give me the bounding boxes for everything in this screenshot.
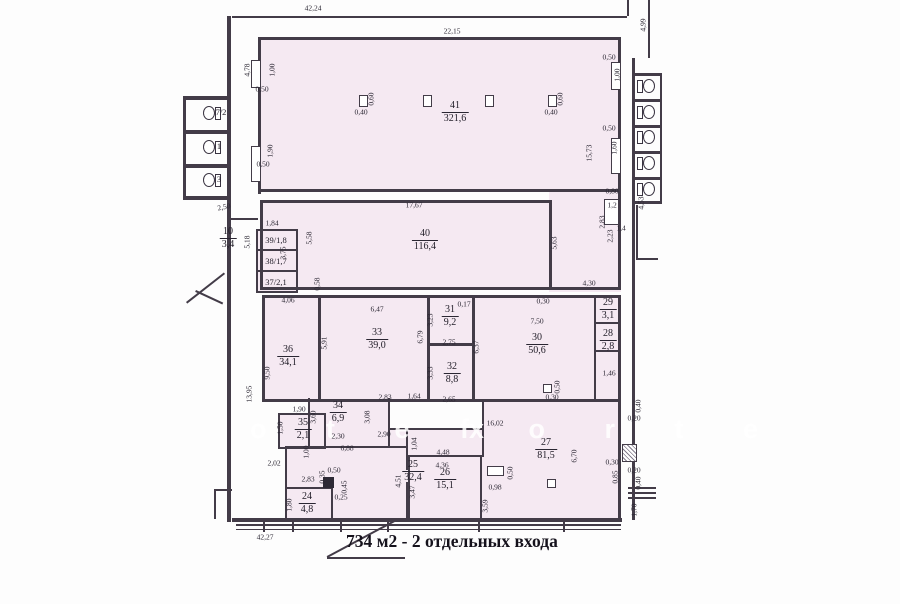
dim-label: 1,90 <box>266 144 274 157</box>
dim-label: 2,83 <box>301 475 314 483</box>
wall <box>258 37 621 40</box>
dim-label: 4,78 <box>243 63 251 76</box>
toilet-bowl <box>643 79 655 93</box>
room-number: 28 <box>600 328 617 341</box>
wall <box>634 177 662 180</box>
wall <box>183 130 230 134</box>
dim-label: 1,4 <box>616 224 625 232</box>
toilet-bowl <box>643 156 655 170</box>
dim-label: 42,24 <box>305 4 322 12</box>
toilet-icon <box>637 104 657 120</box>
room-area: 81,5 <box>535 450 557 462</box>
wall <box>262 295 621 298</box>
toilet-bowl <box>203 173 215 187</box>
dim-label: 5,63 <box>550 236 558 249</box>
toilet-icon <box>637 129 657 145</box>
dim-label: 15,73 <box>585 145 593 162</box>
room-area: 321,6 <box>442 113 469 125</box>
dim-label: 2,65 <box>442 395 455 403</box>
wall <box>660 73 662 204</box>
dim-label: 0,50 <box>602 53 615 61</box>
dim-label: 4,51 <box>394 474 402 487</box>
room-area: 3,1 <box>600 310 617 322</box>
room-number: 41 <box>442 100 469 113</box>
dim-label: 6,88 <box>340 444 353 452</box>
dim-label: 0,30 <box>536 297 549 305</box>
room-label-40: 40116,4 <box>412 228 438 252</box>
room-label-29: 293,1 <box>600 297 617 321</box>
room-area: 2,8 <box>600 341 617 353</box>
dim-label: 0,30 <box>605 458 618 466</box>
wall <box>256 291 298 293</box>
dim-label: 1,04 <box>410 437 418 450</box>
dim-label: 1,00 <box>268 63 276 76</box>
dim-label: 0,40 <box>634 399 642 412</box>
room-label-36: 3634,1 <box>277 344 299 368</box>
room-number: 36 <box>277 344 299 357</box>
room-inline-label: 37/2,1 <box>265 277 287 287</box>
dim-label: 0,40 <box>634 476 642 489</box>
room-area: 2,1 <box>295 430 312 442</box>
wall <box>648 0 650 58</box>
wall <box>340 521 342 532</box>
dim-label: 2,83 <box>378 393 391 401</box>
dim-label: 4,30 <box>582 279 595 287</box>
dim-label: 13,95 <box>245 386 253 403</box>
dim-label: 5,58 <box>305 231 313 244</box>
toilet-bowl <box>203 140 215 154</box>
dim-label: 2,75 <box>442 338 455 346</box>
watermark-text: f o r t e <box>460 414 784 445</box>
room-label-25: 2532,4 <box>402 459 424 483</box>
room-label-30: 3050,6 <box>526 332 548 356</box>
wall <box>634 99 662 102</box>
toilet-bowl <box>643 130 655 144</box>
wall <box>230 218 258 220</box>
room-area: 34,1 <box>277 357 299 369</box>
room-number: 32 <box>444 361 461 374</box>
wall <box>262 295 265 402</box>
dim-label: 4,06 <box>281 296 294 304</box>
dim-label: 2,02 <box>267 459 280 467</box>
wall <box>256 229 298 231</box>
room-fill <box>260 200 552 290</box>
room-label-33: 3339,0 <box>366 327 388 351</box>
dim-label: 1,84 <box>265 219 278 227</box>
dim-label: 0,58 <box>313 277 321 290</box>
dim-label: 1,64 <box>407 392 420 400</box>
wall <box>214 489 232 491</box>
room-fill <box>258 37 621 192</box>
room-number: 31 <box>442 304 459 317</box>
niche-or-column-icon <box>547 479 556 488</box>
room-inline-label: 3 <box>217 174 221 184</box>
note-underline <box>327 557 405 559</box>
wall <box>183 96 230 100</box>
room-number: 27 <box>535 437 557 450</box>
room-label-10: 103,4 <box>220 226 237 250</box>
dim-label: 0,17 <box>457 300 470 308</box>
dim-label: 0,80 <box>605 187 618 195</box>
dim-label: 4,48 <box>436 448 449 456</box>
room-number: 24 <box>299 491 316 504</box>
dim-label: 0,20 <box>627 414 640 422</box>
wall <box>594 322 620 324</box>
wall <box>628 497 656 499</box>
dim-label: 42,27 <box>257 533 274 541</box>
room-area: 8,8 <box>444 374 461 386</box>
dim-label: 6,70 <box>570 449 578 462</box>
room-area: 15,1 <box>434 480 456 492</box>
niche-or-column-icon <box>487 466 504 476</box>
room-area: 9,2 <box>442 317 459 329</box>
wall <box>331 487 333 518</box>
toilet-icon <box>637 155 657 171</box>
wall <box>258 189 621 192</box>
wall <box>227 16 231 522</box>
room-number: 29 <box>600 297 617 310</box>
room-area: 3,4 <box>220 239 237 251</box>
room-label-32: 328,8 <box>444 361 461 385</box>
dim-label: 4,53 <box>637 196 645 209</box>
wall <box>183 196 230 200</box>
toilet-bowl <box>643 105 655 119</box>
dim-label: 0,20 <box>627 466 640 474</box>
dim-label: 1,00 <box>302 445 310 458</box>
dim-label: 0,25 <box>334 493 347 501</box>
dim-label: 1,70 <box>630 503 638 516</box>
wall <box>195 290 223 304</box>
dim-label: 3,23 <box>426 313 434 326</box>
dim-label: 1,00 <box>613 68 621 81</box>
shaft-icon <box>622 444 637 462</box>
wall <box>636 258 658 260</box>
dim-label: 0,85 <box>611 470 619 483</box>
dim-label: 2,23 <box>606 229 614 242</box>
dim-label: 0,50 <box>553 380 561 393</box>
dim-label: 0,50 <box>506 466 514 479</box>
wall <box>627 0 629 16</box>
wall <box>232 16 627 18</box>
dim-label: 0,40 <box>544 108 557 116</box>
room-number: 35 <box>295 417 312 430</box>
dim-label: 0,50 <box>256 160 269 168</box>
dim-label: 0,50 <box>327 466 340 474</box>
room-inline-label: 38/1,7 <box>265 256 287 266</box>
wall <box>636 205 638 260</box>
wall <box>183 164 230 168</box>
dim-label: 6,37 <box>472 340 480 353</box>
wall <box>628 492 656 494</box>
floor-plan: o t e xf o r t e42,2422,154,994,781,000,… <box>0 0 900 604</box>
room-number: 26 <box>434 467 456 480</box>
room-label-27: 2781,5 <box>535 437 557 461</box>
dim-label: 3,59 <box>481 499 489 512</box>
wall <box>263 521 265 532</box>
room-label-34: 346,9 <box>330 400 347 424</box>
dim-label: 3,08 <box>363 410 371 423</box>
wall <box>256 249 298 251</box>
dim-label: 6,79 <box>416 330 424 343</box>
room-label-41: 41321,6 <box>442 100 469 124</box>
wall <box>618 295 621 402</box>
area-note: 734 м2 - 2 отдельных входа <box>346 531 558 552</box>
dim-label: 0,50 <box>602 124 615 132</box>
room-number: 30 <box>526 332 548 345</box>
wall <box>563 521 565 532</box>
dim-label: 0,98 <box>488 483 501 491</box>
dim-label: 9,50 <box>263 366 271 379</box>
toilet-icon <box>637 78 657 94</box>
room-number: 40 <box>412 228 438 241</box>
dim-label: 1,46 <box>602 369 615 377</box>
niche-or-column-icon <box>485 95 494 107</box>
dim-label: 1,90 <box>292 405 305 413</box>
dim-label: 1,50 <box>276 421 284 434</box>
wall <box>260 200 263 290</box>
dim-label: 0,35 <box>318 470 326 483</box>
room-label-28: 282,8 <box>600 328 617 352</box>
wall <box>594 295 596 399</box>
wall <box>296 229 298 293</box>
dim-label: 0,30 <box>545 393 558 401</box>
room-area: 116,4 <box>412 241 438 253</box>
wall <box>256 229 258 293</box>
wall <box>634 125 662 128</box>
room-label-35: 352,1 <box>295 417 312 441</box>
room-number: 34 <box>330 400 347 413</box>
wall <box>183 96 186 200</box>
room-label-31: 319,2 <box>442 304 459 328</box>
toilet-bowl <box>643 182 655 196</box>
wall <box>186 272 225 303</box>
dim-label: 1,60 <box>610 141 618 154</box>
room-area: 6,9 <box>330 413 347 425</box>
room-label-26: 2615,1 <box>434 467 456 491</box>
niche-or-column-icon <box>423 95 432 107</box>
dim-label: 0,40 <box>354 108 367 116</box>
wall <box>427 295 430 399</box>
room-number: 25 <box>402 459 424 472</box>
wall <box>634 151 662 154</box>
dim-label: 1,2 <box>607 201 616 209</box>
dim-label: 22,15 <box>444 27 461 35</box>
dim-label: 0,60 <box>556 92 564 105</box>
dim-label: 3,33 <box>426 366 434 379</box>
room-label-24: 244,8 <box>299 491 316 515</box>
wall <box>214 489 216 519</box>
wall <box>292 521 294 532</box>
wall <box>390 446 408 448</box>
room-number: 33 <box>366 327 388 340</box>
toilet-bowl <box>203 106 215 120</box>
dim-label: 0,50 <box>255 85 268 93</box>
dim-label: 17,67 <box>406 201 423 209</box>
dim-label: 5,91 <box>320 336 328 349</box>
room-area: 39,0 <box>366 340 388 352</box>
dim-label: 2,90 <box>377 430 390 438</box>
dim-label: 4,99 <box>639 18 647 31</box>
room-inline-label: 39/1,8 <box>265 235 287 245</box>
dim-label: 7,50 <box>530 317 543 325</box>
toilet-icon <box>637 181 657 197</box>
room-area: 4,8 <box>299 504 316 516</box>
dim-label: 1,80 <box>285 498 293 511</box>
dim-label: 2,30 <box>331 432 344 440</box>
dim-label: 3,47 <box>408 485 416 498</box>
wall <box>634 73 662 76</box>
dim-label: 5,18 <box>243 235 251 248</box>
room-inline-label: 7/2 <box>216 107 227 117</box>
dim-label: 2,83 <box>598 215 606 228</box>
dim-label: 16,02 <box>487 419 504 427</box>
dim-label: 6,47 <box>370 305 383 313</box>
room-inline-label: 1 <box>217 141 221 151</box>
room-number: 10 <box>220 226 237 239</box>
wall <box>256 270 298 272</box>
room-area: 50,6 <box>526 345 548 357</box>
dim-label: 0,60 <box>367 92 375 105</box>
room-area: 32,4 <box>402 472 424 484</box>
